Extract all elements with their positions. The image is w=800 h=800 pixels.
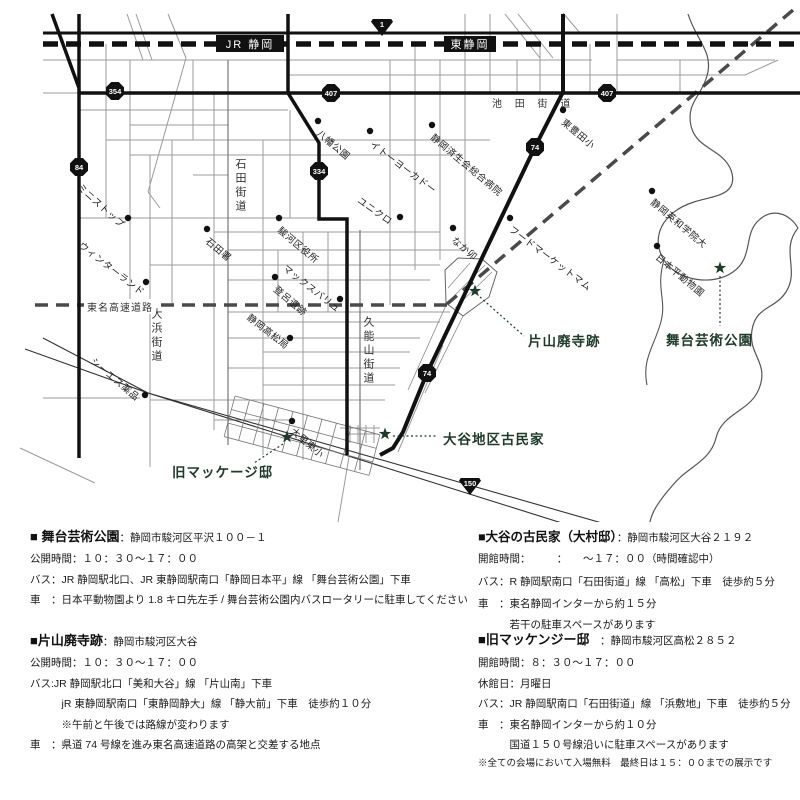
route-shield-84: 84 [70, 158, 88, 176]
destination-label-butai-geijutsu-park: 舞台芸術公園 [666, 329, 753, 349]
destination-label-katayama-haiji: 片山廃寺跡 [528, 330, 601, 350]
info-title: ■ 舞台芸術公園 [30, 529, 119, 544]
info-line: 車 ：県道 74 号線を進み東名高速道路の高架と交差する地点 [30, 735, 470, 756]
poi-dot [507, 215, 513, 221]
poi-dot [397, 214, 403, 220]
station-jr-shizuoka: JR 静岡 [216, 35, 284, 52]
poi-dot [315, 118, 321, 124]
info-line: 休館日：月曜日 [478, 674, 793, 695]
map-canvas [0, 0, 800, 522]
poi-dot [450, 225, 456, 231]
info-line: 車 ：東名静岡インターから約１５分 [478, 594, 793, 615]
route-shield-334: 334 [310, 162, 328, 180]
info-line: 公開時間：１０：３０～１７：００ [30, 549, 470, 570]
info-line: バス：JR 静岡駅南口「石田街道」線 「浜敷地」下車 徒歩約５分 [478, 694, 793, 715]
hill-road-3 [646, 260, 664, 385]
info-title: ■大谷の古民家（大村邸） [478, 530, 617, 544]
poi-dot [429, 122, 435, 128]
info-block-oya-kominka: ■大谷の古民家（大村邸）：静岡市駿河区大谷２１９２ 開館時間： ： ～１７：００… [478, 526, 793, 635]
station-higashi-shizuoka: 東静岡 [444, 36, 496, 52]
info-heading: ■片山廃寺跡：静岡市駿河区大谷 [30, 630, 470, 653]
route-shield-407-west: 407 [322, 84, 340, 102]
poi-dot [272, 274, 278, 280]
road-label-tomei-expressway: 東名高速道路 [84, 299, 156, 314]
info-title: ■旧マッケンジー邸 [478, 632, 589, 647]
info-block-katayama-haiji: ■片山廃寺跡：静岡市駿河区大谷 公開時間：１０：３０～１７：００ バス:JR 静… [30, 630, 470, 756]
info-line: バス：R 静岡駅南口「石田街道」線 「高松」下車 徒歩約５分 [478, 572, 793, 593]
info-address: ：静岡市駿河区高松２８５２ [589, 635, 736, 647]
destination-label-mackenzie-house: 旧マッケージ邸 [172, 461, 273, 481]
info-line: jR 東静岡駅南口「東静岡静大」線 「静大前」下車 徒歩約１０分 [30, 694, 470, 715]
street-grid-horizontal [43, 60, 775, 434]
poi-dot [289, 418, 295, 424]
info-title: ■片山廃寺跡 [30, 633, 103, 648]
poi-dot [204, 226, 210, 232]
info-block-butai-geijutsu-park: ■ 舞台芸術公園：静岡市駿河区平沢１００－１ 公開時間：１０：３０～１７：００ … [30, 526, 470, 611]
info-line: 公開時間：１０：３０～１７：００ [30, 653, 470, 674]
road-label-kunozan-kaido: 久能山街道 [360, 316, 376, 386]
coast-road-route150 [148, 393, 752, 522]
info-line: 車 ：東名静岡インターから約１０分 [478, 715, 793, 736]
info-address: ：静岡市駿河区大谷 [103, 636, 198, 648]
info-heading: ■大谷の古民家（大村邸）：静岡市駿河区大谷２１９２ [478, 526, 793, 549]
info-heading: ■ 舞台芸術公園：静岡市駿河区平沢１００－１ [30, 526, 470, 549]
info-address: ：静岡市駿河区平沢１００－１ [119, 532, 266, 544]
access-map-page: JR 静岡 東静岡 1 354 407 407 84 334 74 74 150… [0, 0, 800, 800]
poi-dot [649, 188, 655, 194]
road-route74 [380, 14, 563, 455]
star-marker [469, 285, 481, 297]
street-grid-vertical [106, 14, 680, 467]
road-label-ikeda-kaido: 池 田 街 道 [492, 95, 575, 110]
destination-label-oya-kominka: 大谷地区古民家 [443, 428, 545, 448]
star-marker [379, 428, 391, 440]
info-line: 車 ：日本平動物園より 1.8 キロ先左手 / 舞台芸術公園内バスロータリーに駐… [30, 590, 470, 611]
info-line: バス：JR 静岡駅北口、JR 東静岡駅南口「静岡日本平」線 「舞台芸術公園」下車 [30, 570, 470, 591]
info-line: ※午前と午後では路線が変わります [30, 715, 470, 736]
route-shield-74-north: 74 [526, 138, 544, 156]
poi-dot [276, 215, 282, 221]
route-shield-407-east: 407 [598, 84, 616, 102]
info-line: バス:JR 静岡駅北口「美和大谷」線 「片山南」下車 [30, 674, 470, 695]
tomei-expressway [35, 10, 793, 305]
info-line: 国道１５０号線沿いに駐車スペースがあります [478, 735, 793, 756]
route-shield-354: 354 [106, 82, 124, 100]
info-address: ：静岡市駿河区大谷２１９２ [617, 532, 754, 544]
star-marker [714, 262, 726, 274]
footer-note: ※全ての会場において入場無料 最終日は１５：００までの展示です [478, 755, 772, 769]
info-line: 開館時間： ： ～１７：００（時間確認中） [478, 549, 793, 570]
poi-dot [654, 243, 660, 249]
road-label-ohama-kaido: 大浜街道 [148, 308, 164, 364]
poi-dot [367, 128, 373, 134]
road-label-ishida-kaido: 石田街道 [232, 158, 248, 214]
info-line: 開館時間：８：３０～１７：００ [478, 653, 793, 674]
info-block-mackenzie-house: ■旧マッケンジー邸 ：静岡市駿河区高松２８５２ 開館時間：８：３０～１７：００ … [478, 628, 793, 756]
route-shield-74-south: 74 [418, 364, 436, 382]
info-heading: ■旧マッケンジー邸 ：静岡市駿河区高松２８５２ [478, 628, 793, 653]
road-route84 [52, 14, 79, 458]
